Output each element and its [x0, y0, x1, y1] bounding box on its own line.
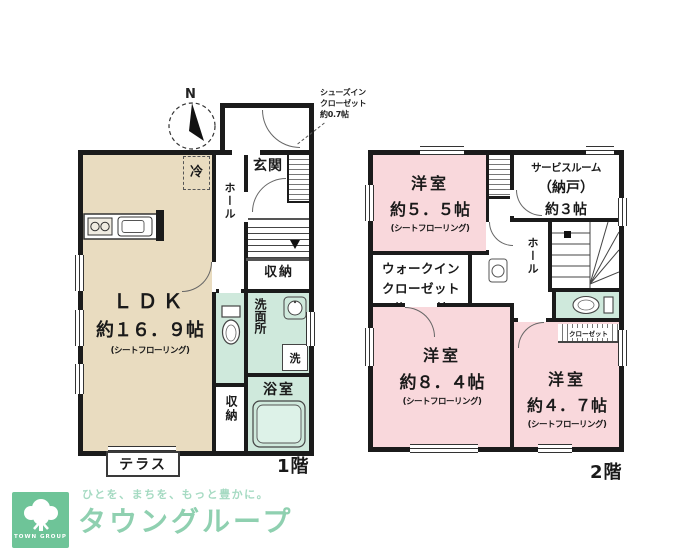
bathtub-icon [252, 400, 306, 448]
washroom-door-opening [219, 289, 241, 293]
washer-label: 洗 [290, 350, 301, 366]
shoes-closet-note-line2: クローゼット [320, 99, 366, 110]
window [618, 330, 627, 366]
compass-icon: N [163, 86, 221, 152]
kitchen-wall-stub [156, 210, 164, 241]
toilet1-icon [219, 305, 243, 349]
shoes-closet-note-line1: シューズイン [320, 88, 366, 99]
service-room-line1: サービスルーム [516, 160, 616, 175]
washroom-sink-icon [283, 296, 307, 320]
room-5-5-name: 洋室 [378, 170, 482, 194]
wall-wic-east [468, 255, 472, 303]
wall-toilet-south [212, 383, 248, 387]
window [586, 146, 614, 155]
room-4-7-label: 洋室 約４．７帖 (シートフローリング) [518, 366, 616, 430]
stairs-bottom-line [246, 258, 309, 261]
toilet2-icon [562, 294, 616, 316]
room-8-4-label: 洋室 約８．４帖 (シートフローリング) [383, 342, 501, 407]
window [75, 364, 84, 394]
town-group-logo: TOWN GROUP [12, 492, 69, 548]
window [75, 310, 84, 346]
genkan-label: 玄関 [246, 158, 290, 174]
tree-icon [20, 495, 62, 533]
room-ldk-flooring: (シートフローリング) [95, 344, 205, 356]
logo-brand-text: TOWN GROUP [14, 534, 67, 540]
bath-label: 浴室 [252, 382, 306, 398]
stairs-storage-label: 収納 [250, 266, 308, 281]
kitchen-counter-icon [83, 213, 159, 240]
shoes-closet-note-line3: 約0.7帖 [320, 110, 366, 121]
closet-47-label2: クローゼット [568, 328, 609, 338]
room-8-4-size: 約８．４帖 [383, 368, 501, 393]
window [365, 185, 374, 221]
floor1-tag: 1階 [277, 452, 310, 478]
entrance-step-line [248, 218, 309, 220]
stairs-floor2 [552, 222, 619, 288]
terrace-label: テラス [119, 454, 167, 474]
window [618, 198, 627, 226]
wic-line2: クローゼット [375, 278, 467, 297]
room-4-7-flooring: (シートフローリング) [518, 418, 616, 430]
shoes-closet-shelf [287, 155, 309, 203]
window [538, 444, 572, 453]
room-8-4-flooring: (シートフローリング) [383, 395, 501, 407]
room-ldk-label: ＬＤＫ 約１６．９帖 (シートフローリング) [95, 285, 205, 356]
genkan-hall-opening [244, 192, 248, 222]
fridge-box: 冷 [183, 156, 210, 190]
stairs-direction-arrow [290, 240, 300, 249]
shoes-closet-note: シューズイン クローゼット 約0.7帖 [320, 88, 366, 120]
hall1-label: ホール [221, 182, 237, 221]
washroom-label: 洗面所 [252, 298, 269, 334]
room-4-7-size: 約４．７帖 [518, 392, 616, 416]
room-ldk-size: 約１６．９帖 [95, 316, 205, 342]
wic-line1: ウォークイン [375, 258, 467, 277]
floorplan-page: ＬＤＫ 約１６．９帖 (シートフローリング) 冷 玄関 ホール 収納 [0, 0, 700, 550]
window [75, 255, 84, 291]
fridge-label: 冷 [190, 166, 203, 181]
room-8-4-name: 洋室 [383, 342, 501, 366]
closet-47-shelf-overlay: クローゼット [558, 324, 619, 343]
window [420, 146, 464, 155]
compass-north-label: N [185, 87, 196, 102]
ldk-door-opening [212, 262, 216, 292]
washer-box: 洗 [282, 344, 308, 371]
service-door-opening [510, 190, 514, 216]
closet-55-shelf [489, 155, 510, 199]
terrace-box: テラス [106, 451, 180, 477]
logo-company-name: タウングループ [78, 500, 293, 540]
room-4-7-name: 洋室 [518, 366, 616, 390]
window [306, 312, 315, 346]
window [410, 444, 478, 453]
storage-small-label: 収納 [223, 395, 240, 423]
hall-basin-icon [488, 258, 508, 283]
floor2-tag: 2階 [590, 458, 623, 484]
room-5-5-label: 洋室 約５．５帖 (シートフローリング) [378, 170, 482, 234]
room-5-5-size: 約５．５帖 [378, 196, 482, 220]
hall2-label: ホール [524, 237, 540, 276]
room-5-5-flooring: (シートフローリング) [378, 222, 482, 234]
window [365, 328, 374, 366]
